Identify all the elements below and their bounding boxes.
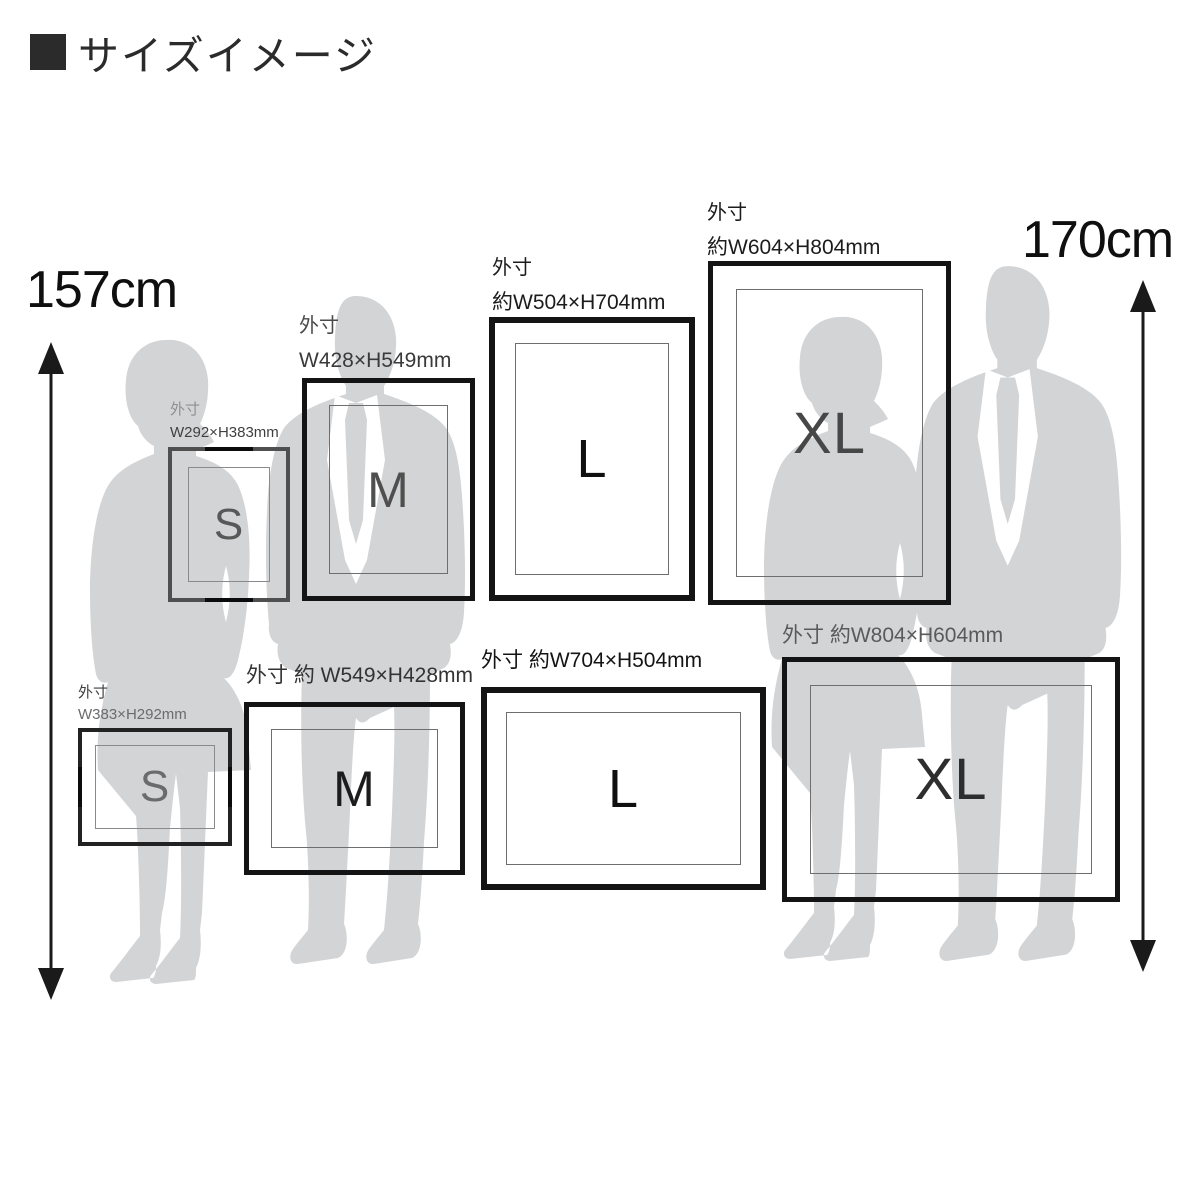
dimension-label-portrait-m: 外寸 W428×H549mm [299,314,451,374]
size-letter-xl-portrait: XL [713,266,946,600]
dimension-label-portrait-l: 外寸 約W504×H704mm [492,256,665,316]
page-title-text: サイズイメージ [78,22,377,82]
size-comparison-diagram: S M L XL S M L XL 外寸 W292×H383mm 外寸 W428… [0,0,1200,1200]
outer-dim-caption: 外寸 [170,401,279,420]
frame-portrait-l: L [489,317,695,601]
dimension-label-landscape-xl: 外寸 約W804×H604mm [782,623,1003,649]
title-square-icon [30,34,66,70]
size-letter-s-portrait: S [172,451,286,598]
outer-dim-value: W428×H549mm [299,348,451,374]
size-letter-s-landscape: S [82,732,228,842]
outer-dim-value: 約W504×H704mm [492,290,665,316]
page-title: サイズイメージ [30,22,377,82]
dimension-label-landscape-m: 外寸 約 W549×H428mm [246,663,473,689]
frame-portrait-s: S [168,447,290,602]
outer-dim-caption: 外寸 [707,201,880,226]
frame-portrait-m: M [302,378,475,601]
measure-arrow-right [1126,278,1160,974]
frame-accent [205,598,253,602]
size-letter-xl-landscape: XL [787,662,1115,897]
height-label-170cm: 170cm [1022,210,1173,270]
dimension-label-landscape-s: 外寸 W383×H292mm [78,684,187,725]
outer-dim-value: W383×H292mm [78,706,187,725]
frame-portrait-xl: XL [708,261,951,605]
frame-landscape-s: S [78,728,232,846]
frame-landscape-l: L [481,687,766,890]
outer-dim-value: W292×H383mm [170,424,279,443]
height-label-157cm: 157cm [26,260,177,320]
size-letter-l-landscape: L [487,693,760,884]
dimension-label-portrait-xl: 外寸 約W604×H804mm [707,201,880,261]
frame-accent [228,767,232,807]
size-letter-l-portrait: L [495,323,689,595]
dimension-label-landscape-l: 外寸 約W704×H504mm [481,648,702,674]
outer-dim-caption: 外寸 [492,256,665,281]
frame-landscape-xl: XL [782,657,1120,902]
frame-landscape-m: M [244,702,465,875]
dimension-label-portrait-s: 外寸 W292×H383mm [170,401,279,443]
measure-arrow-left [34,340,68,1002]
outer-dim-caption: 外寸 [78,684,187,703]
outer-dim-value: 約W604×H804mm [707,235,880,261]
size-letter-m-portrait: M [307,383,470,596]
outer-dim-caption: 外寸 [299,314,451,339]
size-letter-m-landscape: M [249,707,460,870]
